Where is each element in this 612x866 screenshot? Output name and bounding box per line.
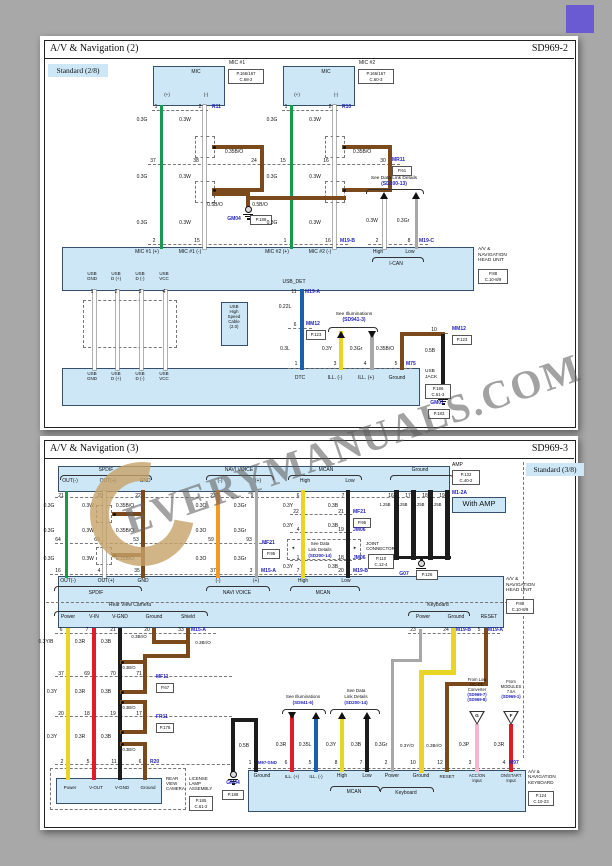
wire-label: 11 bbox=[111, 760, 116, 766]
wire-label: 19 bbox=[439, 494, 445, 500]
wire-label: MCAN bbox=[347, 790, 362, 796]
wire-label: A/V & NAVIGATION HEAD UNIT bbox=[478, 247, 507, 264]
wire-label: 19 bbox=[110, 712, 116, 718]
ref-number-box: P.166/167 C.68-2 bbox=[228, 69, 264, 84]
wire-label: 0.3R bbox=[75, 690, 86, 696]
wire-label: 8 bbox=[335, 761, 338, 767]
wire-label: 0.3B bbox=[328, 565, 338, 571]
wire-label: 5 bbox=[87, 760, 90, 766]
wire-label: Ground bbox=[413, 774, 430, 780]
wire-label: RESET bbox=[439, 774, 454, 779]
wire-label: 1.25B bbox=[431, 503, 442, 508]
connector-label: M19-C bbox=[419, 239, 434, 245]
wire-label: 0.35B/O bbox=[225, 150, 243, 156]
wire-label: USB JACK bbox=[425, 369, 437, 380]
wire-label: 2 bbox=[376, 239, 379, 245]
wire-segment bbox=[212, 192, 250, 196]
connector-label: MM12 bbox=[306, 322, 320, 328]
wire-label: RESET bbox=[481, 615, 498, 621]
wire-segment bbox=[475, 724, 479, 772]
wire-label: 0.35B/O bbox=[376, 347, 394, 353]
wire-label: 0.3G bbox=[267, 221, 278, 227]
wire-label: 93 bbox=[246, 538, 252, 544]
wire-label: MCAN bbox=[316, 591, 331, 597]
wire-label: 59 bbox=[208, 538, 214, 544]
wire-label: ► bbox=[353, 546, 357, 551]
wire-label: 0.3R bbox=[75, 735, 86, 741]
ref-number-box: P.166/167 C.60-3 bbox=[358, 69, 394, 84]
connector-label: JM06 bbox=[353, 528, 366, 534]
wire-label: LICENSE LAMP ASSEMBLY bbox=[189, 776, 212, 791]
wire-label: 0.3Gr bbox=[350, 347, 363, 353]
wire-segment bbox=[143, 654, 190, 658]
connector-label: (SD200-14) bbox=[344, 700, 367, 705]
connector-label: M15-A bbox=[191, 628, 206, 634]
wire-label: 0.3B bbox=[328, 524, 338, 530]
wire-label: 37 bbox=[58, 672, 64, 678]
connector-label: (SD200-13) bbox=[381, 182, 407, 188]
wire-label: Low bbox=[345, 479, 354, 485]
wire-label: OUT(-) bbox=[62, 479, 78, 485]
wire-label: 4 bbox=[364, 362, 367, 368]
wire-label: 4 bbox=[503, 761, 506, 767]
wire-label: REAR VIEW CAMERA bbox=[166, 776, 185, 791]
ref-number-box: P.126 bbox=[416, 570, 438, 580]
wire-label: I-CAN bbox=[389, 262, 403, 268]
wire-segment bbox=[314, 716, 318, 772]
wire-label: 3 bbox=[334, 362, 337, 368]
wire-label: 7 bbox=[360, 761, 363, 767]
wire-label: 15 bbox=[194, 239, 200, 245]
connector-label: G07 bbox=[399, 572, 408, 578]
wire-segment bbox=[445, 490, 450, 560]
wire-label: USB_DET bbox=[282, 280, 305, 286]
wire-label: 0.5B/O bbox=[252, 203, 268, 209]
ref-number-box: P.188 bbox=[222, 790, 244, 800]
wire-segment bbox=[346, 490, 350, 578]
wire-label: 0.3O bbox=[196, 557, 207, 563]
ground-icon bbox=[230, 771, 237, 778]
wire-label: 0.3Y bbox=[47, 690, 57, 696]
wire-label: 0.3B bbox=[101, 735, 111, 741]
wire-label: OUT(+) bbox=[98, 579, 115, 585]
wire-label: 1 bbox=[91, 290, 94, 296]
wire-label: 6 bbox=[60, 628, 63, 634]
wire-label: 0.3Y bbox=[283, 524, 293, 530]
wire-label: (-) bbox=[204, 92, 209, 97]
wire-label: 16 bbox=[325, 239, 331, 245]
wire-segment bbox=[383, 198, 386, 249]
wire-label: 0.3L bbox=[280, 347, 290, 353]
wire-segment bbox=[333, 105, 336, 249]
wire-label: 0.3Y bbox=[283, 565, 293, 571]
wire-label: 1 bbox=[285, 105, 288, 111]
wire-label: 0.22L bbox=[279, 305, 292, 311]
wire-label: 7 bbox=[342, 494, 345, 500]
wire-label: A/V & NAVIGATION KEYBOARD bbox=[528, 769, 556, 785]
arrow-icon bbox=[337, 331, 345, 338]
wire-segment bbox=[116, 290, 119, 370]
wire-segment bbox=[164, 290, 167, 370]
wire-label: Ground bbox=[389, 376, 406, 382]
group-brace bbox=[330, 709, 380, 714]
wire-label: V-GND bbox=[115, 785, 129, 790]
wire-label: 0.3G bbox=[137, 221, 148, 227]
wire-label: 0.3G bbox=[137, 118, 148, 124]
wire-label: USB GND bbox=[87, 371, 97, 381]
wire-label: MIC #2 bbox=[359, 61, 375, 67]
wire-segment bbox=[340, 716, 344, 772]
wire-label: 33 bbox=[178, 628, 184, 634]
ref-number-box: P.88 C.10-8/9 bbox=[506, 599, 534, 614]
wire-label: 0.3Y bbox=[283, 504, 293, 510]
standard-badge: Standard (3/8) bbox=[526, 463, 584, 476]
wire-label: 15 bbox=[280, 159, 286, 165]
wire-segment bbox=[93, 290, 96, 370]
wire-segment bbox=[300, 289, 304, 370]
wire-segment bbox=[143, 742, 147, 780]
wire-label: 0.3Y bbox=[47, 735, 57, 741]
wire-label: A/V & NAVIGATION HEAD UNIT bbox=[506, 577, 535, 594]
component-box bbox=[153, 66, 225, 106]
wire-label: Link Details bbox=[344, 694, 367, 699]
junction-dot bbox=[121, 743, 124, 746]
ref-number-box: P.95 bbox=[262, 549, 280, 559]
wire-label: Ground bbox=[448, 615, 465, 621]
ref-number-box: P.178 bbox=[156, 723, 174, 733]
connector-label: M19-A bbox=[488, 628, 503, 634]
group-brace bbox=[328, 327, 378, 332]
wire-label: 0.35L bbox=[299, 743, 312, 749]
wire-label: Ground bbox=[412, 468, 429, 474]
connector-label: GM04 bbox=[226, 781, 240, 787]
wire-label: 2 bbox=[329, 105, 332, 111]
wire-segment bbox=[451, 628, 456, 675]
wire-label: MIC #2 (+) bbox=[265, 250, 289, 256]
wire-label: 0.3W bbox=[179, 221, 191, 227]
wire-label: (-) bbox=[334, 92, 339, 97]
wire-segment bbox=[301, 490, 305, 578]
connector-label: M19-B bbox=[353, 569, 368, 575]
wire-label: Ground bbox=[146, 615, 163, 621]
header-divider bbox=[44, 58, 574, 59]
wire-label: MIC #1 (+) bbox=[135, 250, 159, 256]
wire-label: 10 bbox=[431, 328, 437, 334]
wire-label: 2 bbox=[61, 760, 64, 766]
wire-label: 1 bbox=[284, 239, 287, 245]
wire-segment bbox=[370, 333, 374, 370]
wire-segment bbox=[143, 700, 147, 734]
connector-label: MR11 bbox=[392, 158, 405, 164]
wire-label: NAVI VOICE bbox=[223, 591, 251, 597]
wire-label: 3 bbox=[250, 569, 253, 575]
ref-number-box: P.123 bbox=[306, 330, 326, 340]
wire-label: 0.3Gr bbox=[234, 557, 247, 563]
wire-label: See Illuminations bbox=[286, 694, 320, 699]
wire-label: MIC #2 (-) bbox=[309, 250, 332, 256]
junction-dot bbox=[343, 146, 346, 149]
wire-label: Power bbox=[64, 785, 77, 790]
wire-segment bbox=[445, 682, 449, 772]
wire-label: 0.3W bbox=[309, 221, 321, 227]
junction-dot bbox=[121, 691, 124, 694]
wire-label: Power bbox=[416, 615, 430, 621]
wire-label: 3 bbox=[139, 290, 142, 296]
arrow-icon bbox=[368, 331, 376, 338]
wire-label: ILL. (+) bbox=[285, 774, 299, 779]
connector-label: GM04 bbox=[227, 217, 241, 223]
wire-label: 0.3R bbox=[276, 743, 287, 749]
ref-number-box: P.88 C.10-8/9 bbox=[478, 269, 508, 284]
ground-icon bbox=[245, 206, 252, 213]
wire-label: MIC bbox=[321, 70, 330, 76]
wire-segment bbox=[411, 490, 416, 560]
dashed-line bbox=[148, 244, 348, 245]
ref-number-box: P.185 C.61-2 bbox=[189, 796, 213, 811]
wire-label: 0.3G bbox=[44, 504, 55, 510]
wire-segment bbox=[248, 196, 346, 200]
triangle-letter: F bbox=[510, 713, 513, 718]
wire-label: Rear View Camera bbox=[109, 603, 151, 609]
wire-label: 0.3Y/O bbox=[400, 743, 414, 748]
ref-number-box: P.123 bbox=[452, 335, 472, 345]
wire-label: 0.3Gr bbox=[375, 743, 388, 749]
connector-label: JM06 bbox=[353, 556, 366, 562]
junction-dot bbox=[121, 661, 124, 664]
wire-segment bbox=[419, 670, 456, 675]
junction-dot bbox=[213, 189, 216, 192]
wire-label: See Data bbox=[347, 688, 366, 693]
wire-label: MIC #1 bbox=[229, 61, 245, 67]
wire-label: 12 bbox=[437, 761, 443, 767]
wire-label: 69 bbox=[84, 672, 90, 678]
wire-label: 64 bbox=[55, 538, 61, 544]
wire-label: 6 bbox=[285, 761, 288, 767]
wire-label: 0.5B bbox=[239, 744, 249, 750]
wire-label: 0.3Gr bbox=[234, 529, 247, 535]
wire-label: 21 bbox=[338, 510, 344, 516]
wire-label: 0.3B bbox=[351, 743, 361, 749]
wire-label: AMP bbox=[452, 463, 463, 469]
wire-label: 70 bbox=[110, 672, 116, 678]
connector-label: (SD969-1) bbox=[501, 695, 520, 700]
wire-label: High bbox=[337, 774, 347, 780]
wire-label: 1.25B bbox=[380, 503, 391, 508]
connector-label: R11 bbox=[212, 105, 221, 111]
connector-label: M75 bbox=[406, 362, 416, 368]
connector-label: M15-A bbox=[261, 569, 276, 575]
wire-label: 6 bbox=[139, 760, 142, 766]
wire-segment bbox=[255, 491, 258, 578]
wire-label: 0.3P bbox=[459, 743, 469, 749]
wire-label: 5 bbox=[478, 628, 481, 634]
wire-label: 18 bbox=[422, 494, 428, 500]
wire-label: (-) bbox=[216, 579, 221, 585]
wire-label: 16 bbox=[55, 569, 61, 575]
wire-label: 17 bbox=[405, 494, 411, 500]
connector-label: R10 bbox=[342, 105, 351, 111]
group-brace bbox=[390, 475, 454, 480]
wire-label: 20 bbox=[58, 712, 64, 718]
wire-label: 6 bbox=[294, 323, 297, 329]
wire-label: 4 bbox=[163, 290, 166, 296]
wire-label: ILL. (+) bbox=[358, 376, 374, 382]
wire-label: 20 bbox=[144, 628, 150, 634]
wire-label: (+) bbox=[164, 92, 170, 97]
wire-segment bbox=[391, 659, 394, 772]
wire-label: 7 bbox=[86, 628, 89, 634]
wire-label: 0.3Y/B bbox=[38, 640, 53, 646]
wire-label: 24 bbox=[251, 159, 257, 165]
connector-label: MF21 bbox=[353, 510, 366, 516]
wire-label: 0.3W bbox=[179, 118, 191, 124]
wire-segment bbox=[120, 690, 147, 694]
wire-label: 6 bbox=[297, 494, 300, 500]
wire-label: 0.3Y bbox=[326, 743, 336, 749]
wire-label: 24 bbox=[443, 628, 449, 634]
wire-segment bbox=[415, 198, 418, 249]
wire-label: 1 bbox=[249, 761, 252, 767]
wire-label: 0.3W bbox=[82, 557, 94, 563]
wire-label: 11 bbox=[291, 290, 296, 296]
document-canvas: A/V & Navigation (2) SD969-2 A/V & Navig… bbox=[0, 0, 612, 866]
connector-label: (SD941-6) bbox=[293, 700, 314, 705]
wire-label: 71 bbox=[136, 672, 142, 678]
wire-label: USB D (-) bbox=[135, 371, 144, 381]
wire-segment bbox=[290, 716, 294, 772]
wire-label: 0.3G bbox=[44, 529, 55, 535]
wire-label: 8 bbox=[408, 239, 411, 245]
wire-label: V-OUT bbox=[89, 785, 103, 790]
wire-label: 2 bbox=[115, 290, 118, 296]
wire-label: 0.3Y bbox=[322, 347, 332, 353]
wire-label: ACC/ON Input bbox=[469, 774, 485, 784]
wire-label: 5 bbox=[309, 761, 312, 767]
wire-label: USB VCC bbox=[159, 271, 169, 281]
connector-label: FR11 bbox=[156, 715, 168, 721]
wire-label: ILL. (-) bbox=[309, 774, 322, 779]
wire-label: 0.3R bbox=[494, 743, 505, 749]
wire-label: 0.3Gr bbox=[397, 219, 410, 225]
wire-label: 2 bbox=[199, 105, 202, 111]
wire-label: 1.25B bbox=[414, 503, 425, 508]
wire-label: High bbox=[298, 579, 308, 585]
corner-app-icon[interactable] bbox=[566, 5, 594, 33]
wire-label: 0.3B/O bbox=[122, 666, 135, 671]
wire-segment bbox=[140, 290, 143, 370]
wire-label: V-IN bbox=[89, 615, 99, 621]
component-box bbox=[283, 66, 355, 106]
connector-label: (SD200-14) bbox=[308, 553, 331, 558]
wire-label: MIC bbox=[191, 70, 200, 76]
wire-label: 1 bbox=[155, 105, 158, 111]
wire-label: 2 bbox=[153, 239, 156, 245]
wire-label: ILL. (-) bbox=[328, 376, 343, 382]
wire-segment bbox=[92, 628, 96, 780]
wire-label: 37 bbox=[150, 159, 156, 165]
wire-label: GND bbox=[137, 579, 148, 585]
connector-label: R20 bbox=[150, 760, 159, 766]
wire-segment bbox=[391, 659, 422, 662]
wire-label: See Data bbox=[311, 541, 330, 546]
ref-number-box: P.132 C.40-2 bbox=[452, 470, 480, 485]
wire-label: High bbox=[373, 250, 383, 256]
connector-label: M19-B bbox=[340, 239, 355, 245]
wire-label: 1 bbox=[295, 362, 298, 368]
wire-label: 30 bbox=[380, 159, 386, 165]
wire-label: ◄ bbox=[291, 546, 295, 551]
wire-label: Link Details bbox=[308, 547, 331, 552]
wire-segment bbox=[65, 491, 68, 578]
wire-label: 16 bbox=[323, 159, 329, 165]
wire-label: 3 bbox=[469, 761, 472, 767]
wire-label: Shield bbox=[181, 615, 195, 621]
wire-segment bbox=[419, 629, 422, 662]
ground-icon bbox=[418, 560, 425, 567]
wire-segment bbox=[118, 628, 122, 780]
triangle-letter: G bbox=[475, 713, 479, 718]
group-brace bbox=[282, 709, 326, 714]
wire-label: 4 bbox=[98, 569, 101, 575]
wire-label: 19 bbox=[338, 528, 344, 534]
wire-label: With AMP bbox=[463, 500, 496, 509]
wire-segment bbox=[160, 105, 163, 249]
wire-label: USB D (-) bbox=[135, 271, 144, 281]
wire-label: (+) bbox=[294, 92, 300, 97]
wire-label: Power bbox=[61, 615, 75, 621]
wire-segment bbox=[203, 105, 206, 249]
wire-label: USB GND bbox=[87, 271, 97, 281]
junction-dot bbox=[121, 701, 124, 704]
wire-label: SPDIF bbox=[89, 591, 104, 597]
wire-segment bbox=[400, 332, 404, 370]
wire-label: OUT(-) bbox=[60, 579, 76, 585]
wire-label: 0.35B/O bbox=[353, 150, 371, 156]
wire-segment bbox=[290, 105, 293, 249]
wire-label: 37 bbox=[210, 569, 216, 575]
junction-dot bbox=[121, 731, 124, 734]
wire-label: 18 bbox=[84, 712, 90, 718]
wire-label: 0.3G bbox=[267, 118, 278, 124]
connector-label: M97 bbox=[509, 761, 519, 767]
wire-label: V-GND bbox=[112, 615, 128, 621]
wire-segment bbox=[143, 660, 147, 694]
connector-label: M97-GND bbox=[258, 761, 277, 766]
wire-label: 0.3W bbox=[179, 175, 191, 181]
connector-label: M19-A bbox=[305, 290, 320, 296]
wire-label: 1 bbox=[297, 556, 300, 562]
wire-label: 0.3B bbox=[101, 690, 111, 696]
wire-label: Low bbox=[341, 579, 350, 585]
wire-label: 0.3G bbox=[44, 557, 55, 563]
connector-label: MF21 bbox=[262, 541, 275, 547]
wire-label: Ground bbox=[140, 785, 155, 790]
wire-label: 21 bbox=[110, 628, 116, 634]
wire-label: JOINT CONNECTOR bbox=[366, 541, 395, 551]
wire-label: 0.3Br/O bbox=[195, 640, 211, 645]
wire-label: 20 bbox=[338, 569, 344, 575]
wire-label: Low bbox=[405, 250, 414, 256]
connector-label: M19-B bbox=[456, 628, 471, 634]
connector-label: (SD941-3) bbox=[342, 318, 365, 324]
wire-segment bbox=[428, 490, 433, 560]
wire-label: 0.3O bbox=[196, 529, 207, 535]
wire-label: 38 bbox=[193, 159, 199, 165]
wire-label: 17 bbox=[136, 712, 142, 718]
wire-label: USB VCC bbox=[159, 371, 169, 381]
wire-label: 5 bbox=[395, 362, 398, 368]
wire-label: 0.3B bbox=[328, 504, 338, 510]
